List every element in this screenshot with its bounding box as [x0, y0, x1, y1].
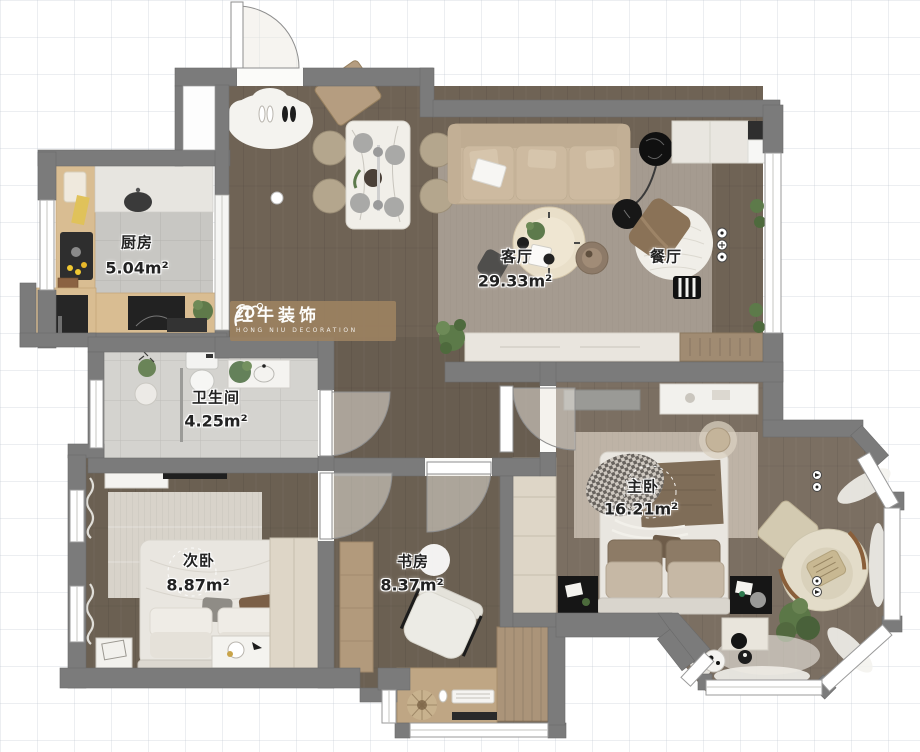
cooktop [60, 232, 93, 280]
master-nightstand-left [558, 576, 598, 614]
bull-logo-icon [230, 301, 264, 331]
master-bed [577, 443, 730, 614]
bathroom-stool [135, 383, 157, 405]
study-desk [397, 668, 497, 723]
label-dining-name: 餐厅 [650, 246, 682, 267]
coffee-table [513, 207, 585, 279]
master-nightstand-right [730, 576, 772, 614]
floor-plan-drawing [0, 0, 920, 752]
label-bathroom-area: 4.25m² [184, 412, 247, 431]
label-living-name: 客厅 [501, 246, 533, 267]
study-closet-bottom [497, 627, 548, 721]
sofa [448, 124, 630, 204]
secondary-nightstand-left [96, 638, 132, 668]
label-secondary-area: 8.87m² [166, 576, 229, 595]
shower-divider [180, 368, 183, 442]
striped-stool [673, 276, 701, 299]
study-cabinet-left [340, 542, 373, 672]
tv-cabinet [672, 121, 768, 163]
kitchen-top-counter [95, 163, 213, 212]
side-table [576, 242, 608, 274]
wall-switch-icons [717, 228, 727, 262]
shaft-niche [183, 86, 215, 150]
label-study-area: 8.37m² [380, 576, 443, 595]
label-kitchen-name: 厨房 [121, 232, 153, 253]
kitchen-sliding-door [215, 195, 229, 330]
label-master-name: 主卧 [627, 476, 659, 497]
ceiling-lamp-symbol-entry [271, 192, 283, 204]
kitchen-bottom-counter [95, 293, 225, 333]
label-kitchen-area: 5.04m² [105, 259, 168, 278]
floor-plan: 厨房 5.04m² 客厅 29.33m² 餐厅 卫生间 4.25m² 次卧 8.… [0, 0, 920, 752]
brand-watermark: 红牛装饰 HONG NIU DECORATION [230, 301, 396, 341]
label-secondary-name: 次卧 [183, 550, 215, 571]
secondary-nightstand-right [212, 636, 270, 668]
label-study-name: 书房 [397, 551, 429, 572]
bathroom-vanity [228, 360, 290, 388]
entry-door [231, 2, 303, 86]
label-living-area: 29.33m² [478, 272, 552, 291]
label-bathroom-name: 卫生间 [192, 387, 240, 408]
label-master-area: 16.21m² [604, 500, 678, 519]
long-console-table [465, 333, 763, 361]
